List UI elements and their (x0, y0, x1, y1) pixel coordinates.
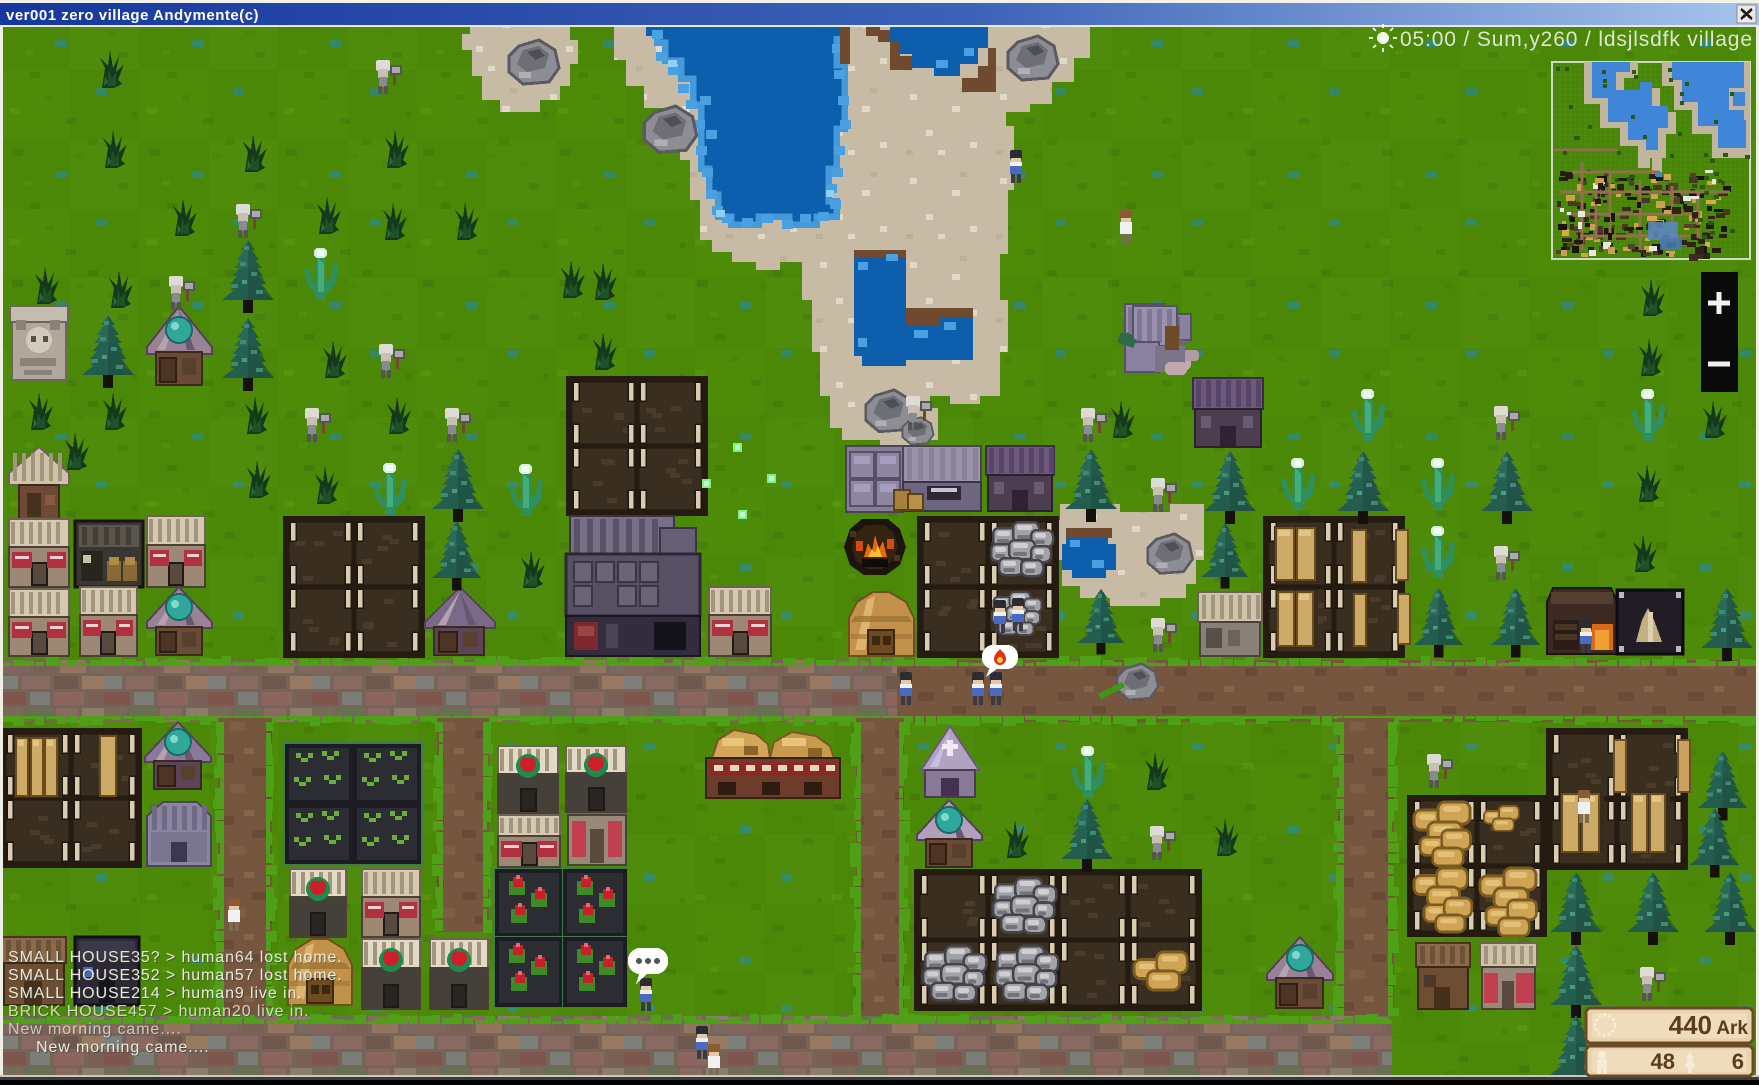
svg-text:05:00 / Sum,y260 / ldsjlsdfk v: 05:00 / Sum,y260 / ldsjlsdfk village (1400, 28, 1752, 51)
svg-text:6: 6 (1732, 1049, 1744, 1074)
svg-text:440: 440 (1669, 1010, 1712, 1040)
svg-text:New morning came....: New morning came.... (8, 1021, 182, 1038)
svg-text:Ark: Ark (1716, 1018, 1748, 1039)
svg-text:48: 48 (1651, 1049, 1675, 1074)
svg-text:ver001 zero village Andymente(: ver001 zero village Andymente(c) (6, 7, 259, 24)
svg-text:SMALL HOUSE35? > human64 lost: SMALL HOUSE35? > human64 lost home. (8, 949, 343, 966)
svg-text:BRICK HOUSE457 > human20 live: BRICK HOUSE457 > human20 live in. (8, 1003, 309, 1020)
svg-text:New morning came....: New morning came.... (36, 1039, 210, 1056)
svg-text:SMALL HOUSE214 > human9 live i: SMALL HOUSE214 > human9 live in. (8, 985, 303, 1002)
svg-text:SMALL HOUSE352 > human57 lost: SMALL HOUSE352 > human57 lost home. (8, 967, 343, 984)
